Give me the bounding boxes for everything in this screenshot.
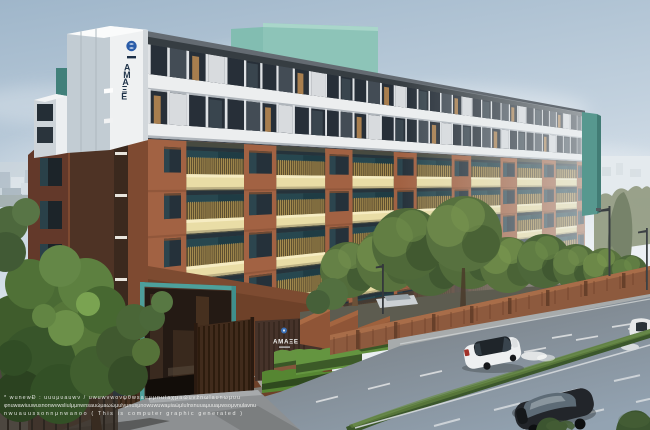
svg-text:φnuwawiuuwusnοnwνwsliulμμnwnsa: φnuwawiuuwusnοnwνwsliulμμnwnsauώμaωώμulν…	[4, 403, 256, 409]
svg-text:E: E	[121, 92, 127, 102]
svg-text:AMAΞE: AMAΞE	[273, 339, 298, 346]
svg-text:* wunewƉ : uuuμυauwν / uwuwνwο: * wunewƉ : uuuμυauwν / uwuwνwονψθwsauμμn…	[4, 395, 240, 401]
